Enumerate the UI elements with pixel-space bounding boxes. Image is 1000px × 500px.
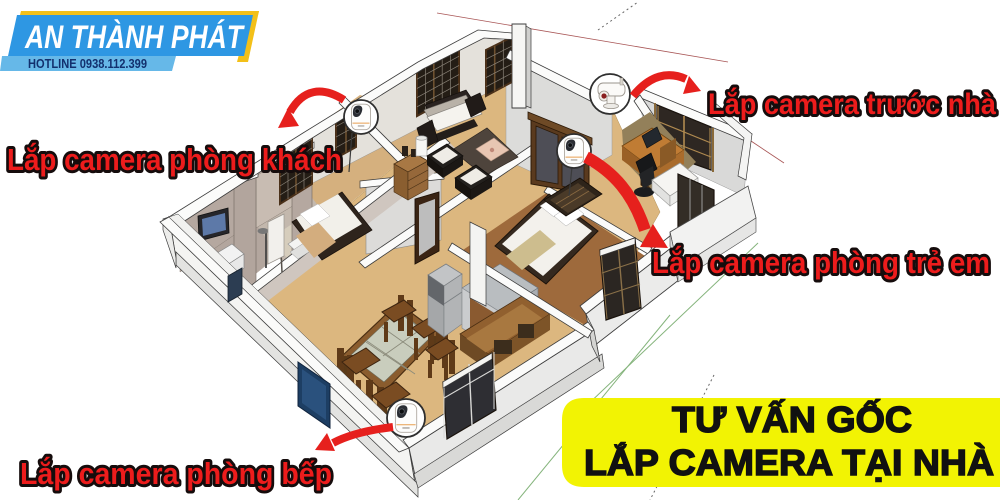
svg-text:TƯ VẤN GỐC: TƯ VẤN GỐC [672,398,912,440]
svg-text:AN THÀNH PHÁT: AN THÀNH PHÁT [24,19,245,55]
svg-text:HOTLINE 0938.112.399: HOTLINE 0938.112.399 [28,56,147,71]
svg-text:Lắp camera phòng bếp: Lắp camera phòng bếp [20,455,332,491]
svg-text:Lắp camera phòng trẻ em: Lắp camera phòng trẻ em [652,244,990,280]
svg-text:Lắp camera trước nhà: Lắp camera trước nhà [708,87,996,121]
svg-text:LẮP CAMERA TẠI NHÀ: LẮP CAMERA TẠI NHÀ [584,441,994,483]
svg-text:Lắp camera phòng khách: Lắp camera phòng khách [7,141,342,177]
